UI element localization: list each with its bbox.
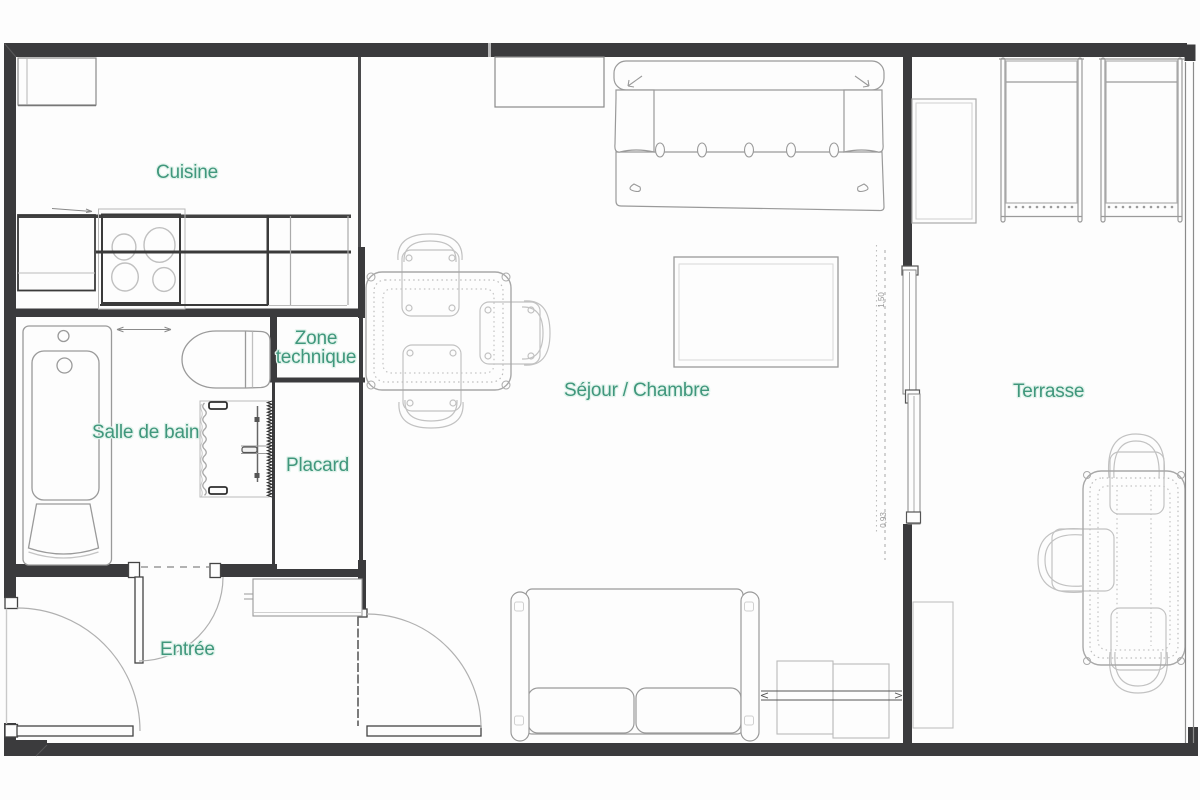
svg-text:Séjour / Chambre: Séjour / Chambre xyxy=(564,380,710,401)
svg-text:technique: technique xyxy=(276,347,357,368)
svg-text:Placard: Placard xyxy=(286,455,349,476)
svg-text:Cuisine: Cuisine xyxy=(156,162,218,183)
svg-text:1,50: 1,50 xyxy=(877,292,886,308)
svg-text:Salle de bain: Salle de bain xyxy=(92,422,199,443)
svg-text:Entrée: Entrée xyxy=(160,639,215,660)
svg-text:Terrasse: Terrasse xyxy=(1013,381,1084,402)
svg-text:Zone: Zone xyxy=(295,328,338,349)
svg-text:0,93: 0,93 xyxy=(879,512,888,528)
